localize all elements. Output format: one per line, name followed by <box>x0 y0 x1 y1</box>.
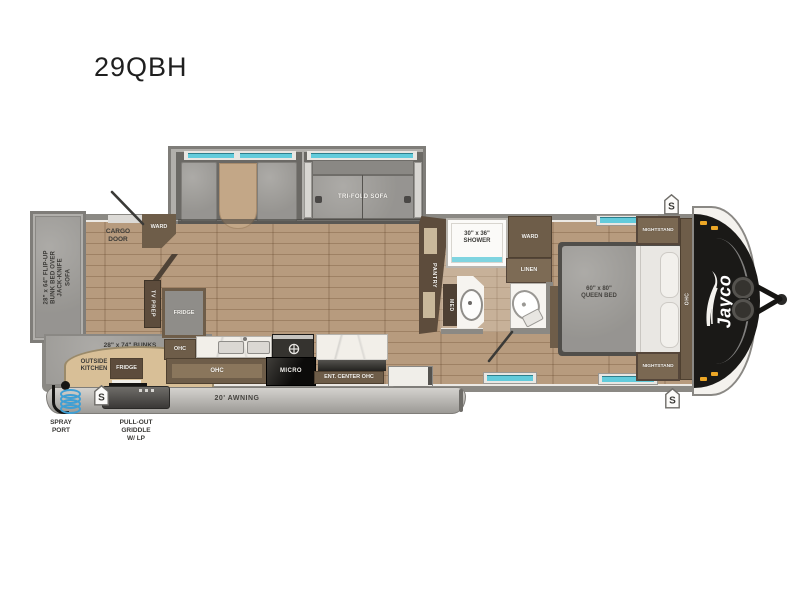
marker-light-3 <box>700 377 707 381</box>
outside-fridge: FRIDGE <box>110 358 143 379</box>
bath-wall-left <box>441 328 483 334</box>
med-cabinet: MED <box>443 284 457 326</box>
tri-fold-sofa: TRI-FOLD SOFA <box>312 175 414 219</box>
burner-icon <box>288 343 300 355</box>
floorplan-page: 29QBH 28" x 64" FLIP-UP BUNK BED OVER JA… <box>0 0 800 600</box>
svg-text:S: S <box>669 396 676 407</box>
spray-port-label: SPRAY PORT <box>32 419 90 435</box>
dinette-bench-right <box>257 162 297 222</box>
bath-faucet <box>468 301 472 305</box>
ohc-upper: OHC <box>164 339 196 360</box>
sofa-cupholder-left <box>315 196 322 203</box>
speaker-marker-bottom: S <box>665 388 680 409</box>
svg-text:S: S <box>98 393 105 404</box>
sofa-backrest <box>312 160 414 175</box>
bottom-window-1 <box>487 375 533 381</box>
propane-tank-2 <box>732 299 754 321</box>
ent-tv <box>318 359 386 371</box>
awning-label: 20' AWNING <box>187 395 287 403</box>
ent-center-ohc: ENT. CENTER OHC <box>314 371 384 384</box>
bath-sink <box>460 289 483 321</box>
flip-up-bunk-label: 28" x 64" FLIP-UP BUNK BED OVER JACK-KNI… <box>30 211 86 343</box>
svg-text:S: S <box>668 202 675 213</box>
sofa-window <box>311 153 413 158</box>
sofa-armrest-left <box>304 162 312 218</box>
linen: LINEN <box>506 258 552 283</box>
bath-vanity <box>457 276 484 332</box>
marker-light-2 <box>711 226 718 230</box>
stove <box>272 334 314 359</box>
ward-bath: WARD <box>508 216 552 258</box>
marker-light-4 <box>711 372 718 376</box>
propane-tank-1 <box>732 277 754 299</box>
nightstand-top: NIGHTSTAND <box>636 216 680 245</box>
dinette-bench-left <box>181 162 217 222</box>
tv-prep-cabinet: TV PREP <box>144 280 161 328</box>
queen-bed-label: 60" x 80" QUEEN BED <box>560 286 638 300</box>
marker-light-1 <box>700 221 707 225</box>
kitchen-sink-right <box>247 341 270 354</box>
griddle <box>102 386 170 409</box>
bedroom-wall <box>550 286 558 348</box>
entry-door <box>388 366 433 387</box>
shower: 30" x 36" SHOWER <box>446 218 508 268</box>
ohc-lower: OHC <box>166 358 268 384</box>
speaker-marker-rear: S <box>94 385 109 406</box>
nightstand-bottom: NIGHTSTAND <box>636 352 680 381</box>
griddle-label: PULL-OUT GRIDDLE W/ LP <box>98 419 174 442</box>
spray-port-icon <box>52 381 86 415</box>
bed-bedding <box>636 246 682 352</box>
page-title: 29QBH <box>94 52 188 83</box>
sofa-cupholder-right <box>404 196 411 203</box>
sofa-seam <box>362 175 363 219</box>
brand-logo: Jayco <box>712 258 738 344</box>
dinette-window-left <box>188 153 234 158</box>
speaker-marker-top: S <box>664 194 679 215</box>
cargo-door-opening <box>108 215 146 223</box>
microwave: MICRO <box>266 357 316 386</box>
awning-end-cap <box>459 389 463 412</box>
kitchen-faucet <box>243 337 247 341</box>
cargo-door-label: CARGO DOOR <box>92 228 144 244</box>
kitchen-sink-left <box>218 341 244 354</box>
ent-counter <box>316 334 388 360</box>
sofa-armrest-right <box>414 162 422 218</box>
slide-opening <box>178 219 422 224</box>
dinette-window-right <box>240 153 292 158</box>
fridge: FRIDGE <box>162 288 206 338</box>
hitch-ball <box>776 294 787 305</box>
